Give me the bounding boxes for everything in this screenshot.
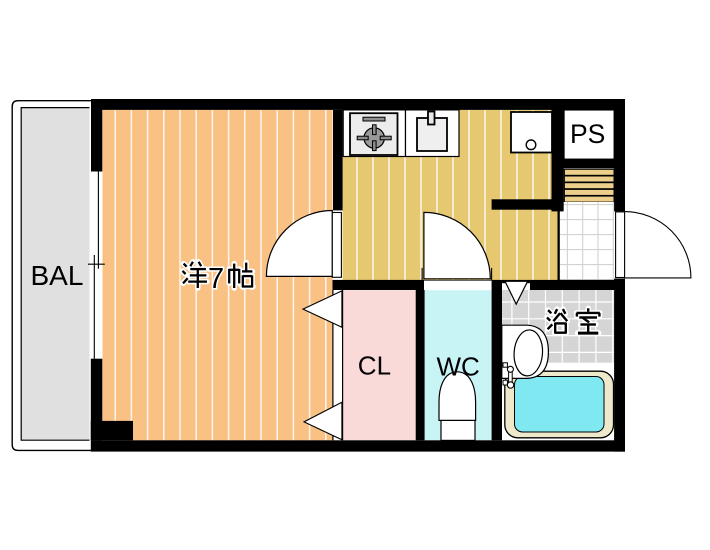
svg-text:WC: WC	[437, 352, 480, 382]
svg-text:7: 7	[208, 263, 224, 295]
svg-text:PS: PS	[570, 119, 605, 149]
svg-text:BAL: BAL	[31, 260, 84, 291]
svg-text:CL: CL	[358, 350, 391, 380]
